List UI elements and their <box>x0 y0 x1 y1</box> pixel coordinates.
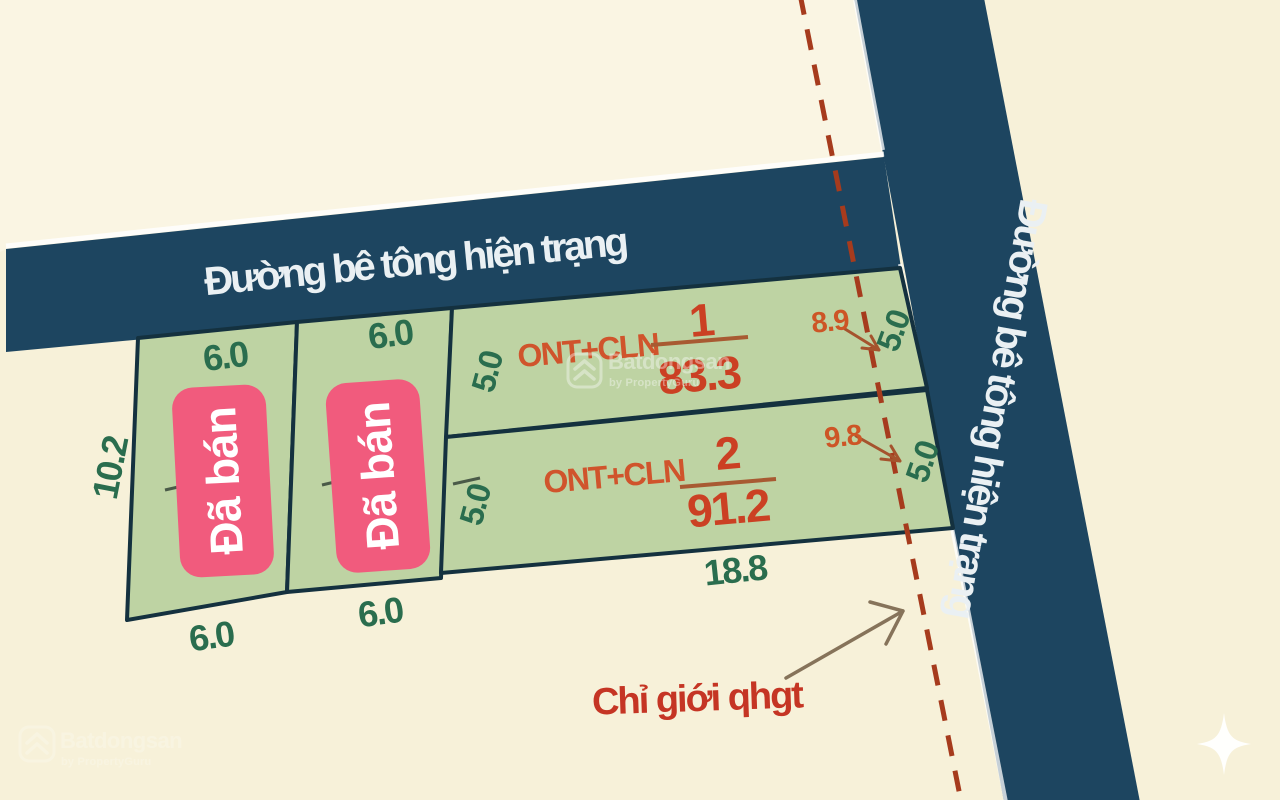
cadastral-diagram-svg: Đường bê tông hiện trạng Đường bê tông h… <box>0 0 1280 800</box>
planning-boundary-label: Chỉ giới qhgt <box>591 674 805 723</box>
lot1-offset: 8.9 <box>810 304 851 340</box>
dim-sold-right-width-top: 6.0 <box>366 311 416 357</box>
watermark-brand-text: Batdongsan <box>60 728 182 753</box>
sold-badge-right-label: Đã bán <box>347 401 409 552</box>
watermark-byline-text: by PropertyGuru <box>61 756 151 768</box>
lot2-width-bottom: 18.8 <box>702 546 769 593</box>
watermark-brand-text: Batdongsan <box>608 349 730 374</box>
lot2-number: 2 <box>713 426 741 480</box>
dim-sold-left-width-bottom: 6.0 <box>186 612 236 659</box>
dim-sold-left-width-top: 6.0 <box>201 333 251 379</box>
watermark-byline-text: by PropertyGuru <box>609 377 699 389</box>
lot2-offset: 9.8 <box>823 419 864 455</box>
sold-badge-right: Đã bán <box>324 378 431 574</box>
sold-badge-left: Đã bán <box>171 384 275 579</box>
dim-sold-right-width-bottom: 6.0 <box>355 588 405 635</box>
land-plot-map: Đường bê tông hiện trạng Đường bê tông h… <box>0 0 1280 800</box>
lot2-area: 91.2 <box>685 479 771 538</box>
sold-badge-left-label: Đã bán <box>193 406 253 556</box>
